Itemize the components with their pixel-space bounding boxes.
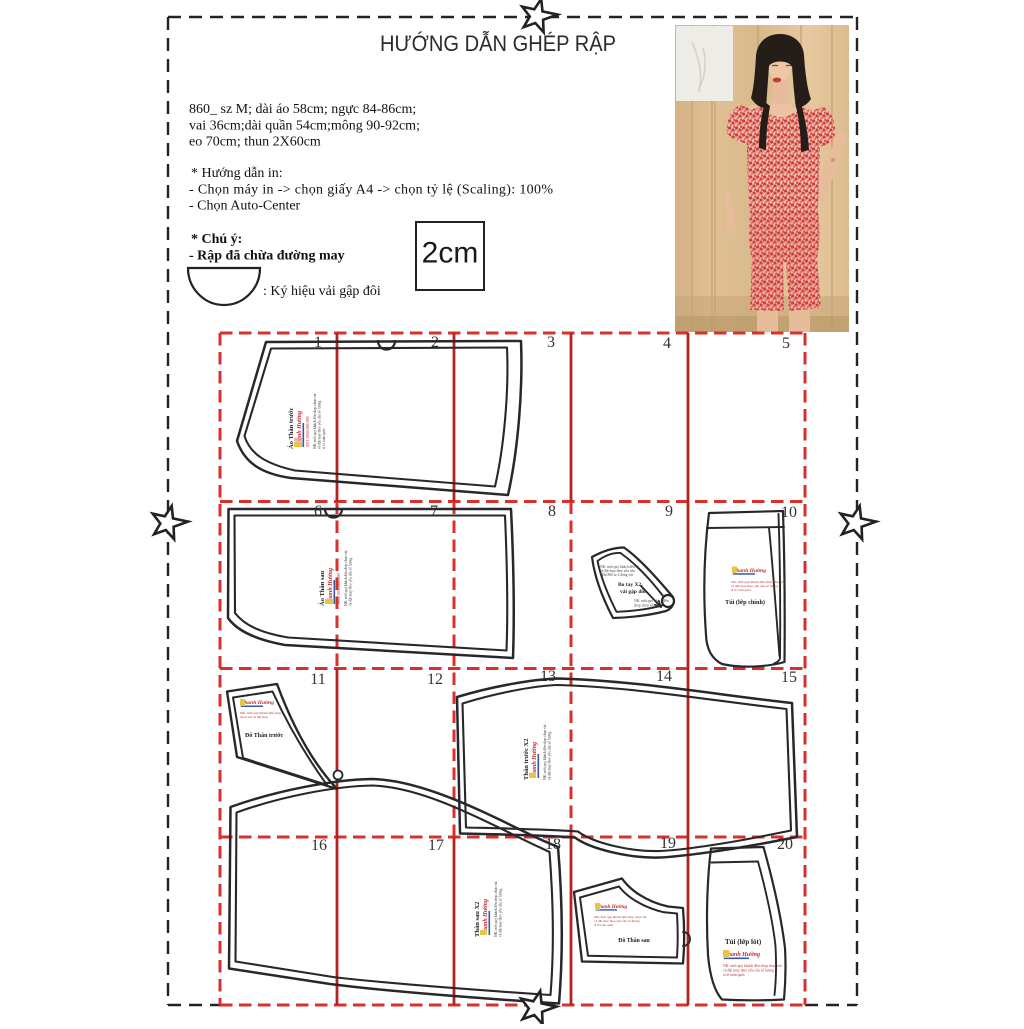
svg-text:: Ký hiệu vải gập đôi: : Ký hiệu vải gập đôi: [263, 284, 381, 299]
svg-text:và đặt may theo yêu cầu số lượ: và đặt may theo yêu cầu số lượng: [499, 889, 503, 937]
svg-text:sỉ lẻ toàn quốc: sỉ lẻ toàn quốc: [594, 923, 614, 927]
svg-text:12: 12: [427, 671, 443, 688]
svg-text:sỉ lẻ toàn quốc: sỉ lẻ toàn quốc: [723, 973, 745, 977]
svg-text:và đặt may theo yêu cầu số lượ: và đặt may theo yêu cầu số lượng: [723, 969, 774, 973]
svg-text:Thanh Hường: Thanh Hường: [596, 904, 628, 910]
svg-text:- Chọn Auto-Center: - Chọn Auto-Center: [189, 199, 301, 214]
svg-text:vải gập đôi: vải gập đôi: [620, 589, 646, 595]
svg-text:7: 7: [430, 503, 438, 520]
svg-text:SĐT 0938.688.999: SĐT 0938.688.999: [305, 417, 310, 447]
svg-text:Thân sau X2: Thân sau X2: [474, 902, 481, 937]
svg-text:NK: mời quý khách đến shop chọ: NK: mời quý khách đến shop chọn vải: [494, 882, 498, 938]
svg-text:9: 9: [665, 503, 673, 520]
svg-text:Thanh Hường: Thanh Hường: [297, 411, 303, 447]
svg-text:16: 16: [311, 837, 327, 854]
svg-text:Túi (lớp chính): Túi (lớp chính): [725, 599, 765, 606]
svg-text:Áo Thân trước: Áo Thân trước: [287, 408, 295, 449]
svg-text:Đô Thân sau: Đô Thân sau: [618, 938, 650, 944]
svg-text:3: 3: [547, 334, 555, 351]
svg-text:HƯỚNG DẪN GHÉP RẬP: HƯỚNG DẪN GHÉP RẬP: [380, 30, 616, 56]
svg-text:Thân trước X2: Thân trước X2: [523, 739, 530, 780]
svg-text:Thanh Hường: Thanh Hường: [328, 568, 334, 604]
svg-text:15: 15: [781, 669, 797, 686]
svg-text:Đô Thân trước: Đô Thân trước: [245, 733, 283, 739]
svg-text:NK: mời quý khách đến shop chọ: NK: mời quý khách đến shop chọn vải: [543, 725, 547, 781]
svg-text:- Rập đã chừa đường may: - Rập đã chừa đường may: [189, 249, 345, 264]
svg-text:NK: mời quý khách đến: NK: mời quý khách đến: [634, 599, 669, 603]
svg-text:SĐT 0938.688.999: SĐT 0938.688.999: [336, 574, 341, 604]
svg-text:860_ sz M; dài áo 58cm; ngực 8: 860_ sz M; dài áo 58cm; ngực 84-86cm;: [189, 102, 416, 117]
svg-text:- Chọn máy in -> chọn giấy A4: - Chọn máy in -> chọn giấy A4 -> chọn tỷ…: [189, 183, 553, 198]
svg-text:Mẫu 860 sz 2 dòng vải: Mẫu 860 sz 2 dòng vải: [600, 572, 633, 577]
svg-text:5: 5: [782, 335, 790, 352]
svg-text:và đặt may theo yêu cầu số lượ: và đặt may theo yêu cầu số lượng: [548, 732, 552, 780]
svg-text:Thanh Hường: Thanh Hường: [733, 568, 766, 574]
svg-text:vai 36cm;dài quần 54cm;mông 90: vai 36cm;dài quần 54cm;mông 90-92cm;: [189, 119, 420, 134]
svg-text:và đặt may theo yêu cầu số lượ: và đặt may theo yêu cầu số lượng: [318, 401, 322, 449]
svg-text:Túi (lớp lót): Túi (lớp lót): [725, 938, 762, 946]
svg-text:* Hướng dẫn in:: * Hướng dẫn in:: [191, 166, 283, 181]
svg-text:Thanh Hường: Thanh Hường: [532, 742, 538, 778]
svg-text:shop chọn vải theo: shop chọn vải theo: [634, 604, 661, 608]
svg-text:* Chú ý:: * Chú ý:: [191, 232, 242, 247]
svg-text:NK: mời quý khách đến shop chọ: NK: mời quý khách đến shop chọn vải: [313, 394, 317, 450]
svg-text:NK: mời quý khách đến shop chọ: NK: mời quý khách đến shop chọn vải: [723, 964, 782, 968]
svg-text:8: 8: [548, 503, 556, 520]
svg-text:sỉ lẻ toàn quốc: sỉ lẻ toàn quốc: [322, 428, 326, 449]
svg-text:và đặt may theo yêu cầu số lượ: và đặt may theo yêu cầu số lượng: [349, 558, 353, 606]
svg-text:11: 11: [310, 671, 325, 688]
svg-text:2cm: 2cm: [422, 237, 479, 270]
svg-text:Áo Thân sau: Áo Thân sau: [318, 570, 326, 606]
svg-text:Thanh Hường: Thanh Hường: [483, 899, 489, 935]
svg-text:chọn vải và đặt may: chọn vải và đặt may: [240, 715, 268, 719]
svg-text:eo 70cm; thun 2X60cm: eo 70cm; thun 2X60cm: [189, 135, 321, 150]
svg-text:Bo tay X2,: Bo tay X2,: [618, 582, 643, 588]
svg-text:4: 4: [663, 335, 671, 352]
svg-text:6: 6: [314, 503, 322, 520]
svg-text:17: 17: [428, 837, 444, 854]
svg-text:13: 13: [540, 668, 556, 685]
svg-text:14: 14: [656, 668, 672, 685]
svg-text:Thanh Hường: Thanh Hường: [241, 700, 274, 706]
svg-text:sỉ lẻ toàn quốc: sỉ lẻ toàn quốc: [731, 588, 752, 592]
svg-text:Thanh Hường: Thanh Hường: [724, 952, 760, 958]
svg-text:NK: mời quý khách đến shop chọ: NK: mời quý khách đến shop chọn vải: [344, 551, 348, 607]
